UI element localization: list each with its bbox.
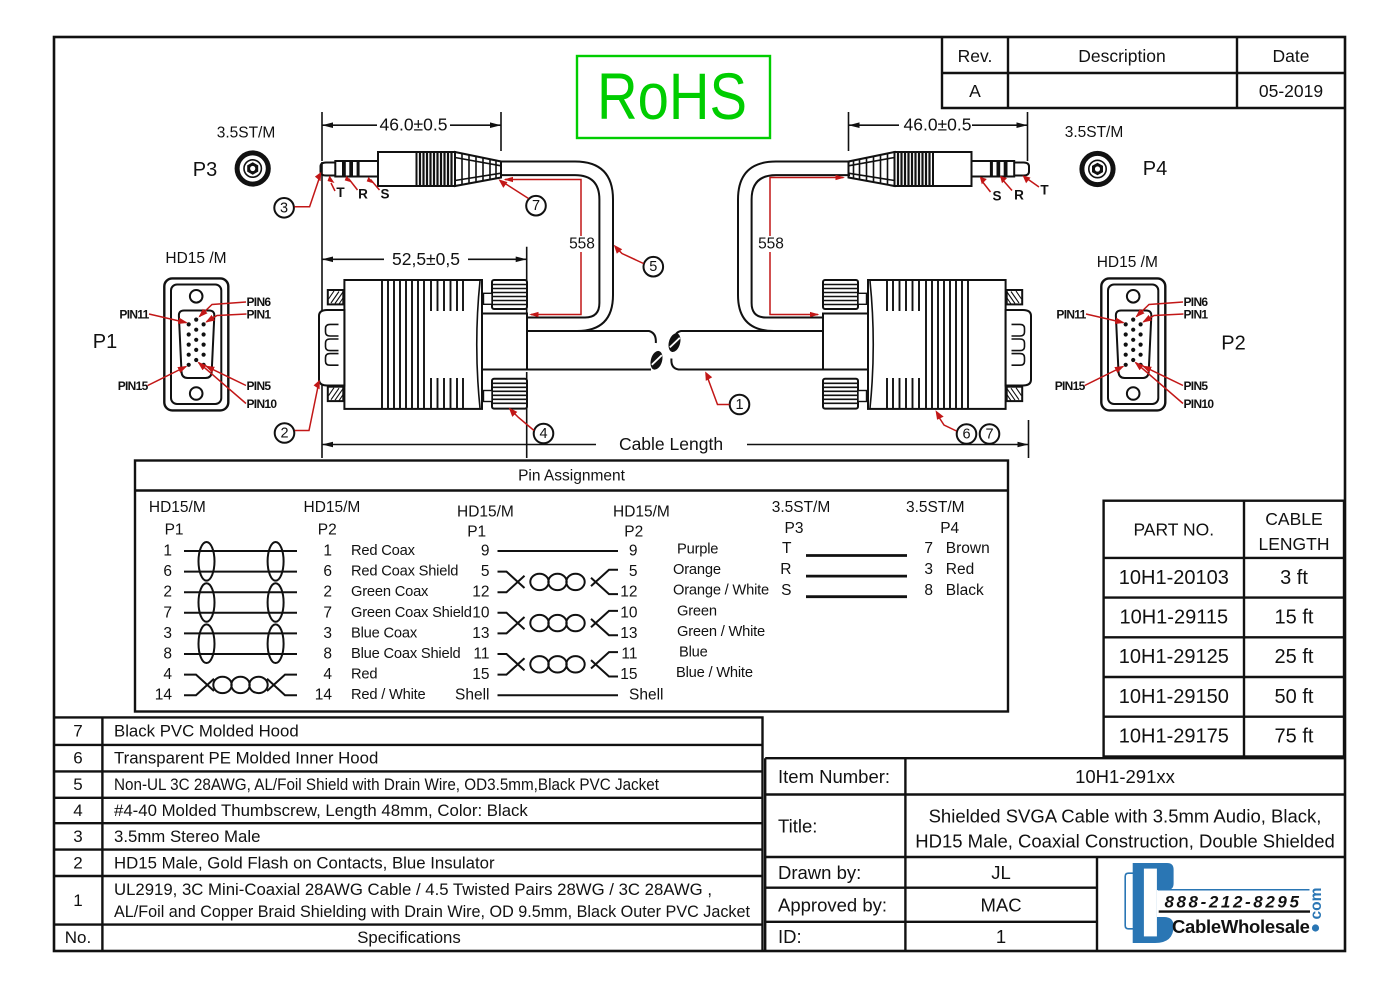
svg-text:1: 1: [996, 926, 1006, 947]
svg-text:#4-40 Molded Thumbscrew, Lengt: #4-40 Molded Thumbscrew, Length 48mm, Co…: [114, 801, 528, 820]
svg-text:11: 11: [621, 646, 637, 663]
svg-text:15: 15: [472, 666, 489, 683]
svg-text:A: A: [969, 81, 981, 101]
svg-text:4: 4: [73, 801, 82, 820]
svg-text:Red: Red: [351, 667, 377, 683]
svg-text:558: 558: [569, 236, 595, 253]
svg-text:P1: P1: [467, 524, 486, 541]
svg-text:Blue: Blue: [679, 645, 708, 661]
svg-text:3.5ST/M: 3.5ST/M: [906, 499, 965, 516]
svg-text:Blue / White: Blue / White: [676, 665, 753, 681]
svg-text:HD15 Male, Coaxial Constructio: HD15 Male, Coaxial Construction, Double …: [915, 831, 1335, 852]
svg-text:3 ft: 3 ft: [1280, 567, 1308, 589]
svg-text:3.5ST/M: 3.5ST/M: [772, 499, 831, 516]
svg-text:CableWholesale: CableWholesale: [1172, 916, 1310, 937]
svg-text:P3: P3: [785, 520, 804, 537]
svg-text:05-2019: 05-2019: [1259, 81, 1323, 101]
svg-text:52,5±0,5: 52,5±0,5: [392, 249, 460, 269]
svg-text:1: 1: [735, 397, 743, 413]
svg-text:15 ft: 15 ft: [1275, 607, 1314, 629]
svg-text:P3: P3: [193, 159, 217, 181]
svg-text:PIN15: PIN15: [118, 379, 149, 393]
svg-text:4: 4: [323, 666, 332, 683]
svg-text:Rev.: Rev.: [958, 46, 993, 66]
svg-text:Red Coax: Red Coax: [351, 543, 416, 559]
svg-text:Black: Black: [946, 582, 984, 599]
svg-text:25 ft: 25 ft: [1275, 646, 1314, 668]
svg-text:75 ft: 75 ft: [1275, 726, 1314, 748]
svg-text:6: 6: [962, 427, 970, 443]
svg-text:P4: P4: [1143, 158, 1167, 180]
svg-text:6: 6: [73, 749, 82, 768]
svg-text:6: 6: [323, 563, 332, 580]
svg-text:Black PVC Molded Hood: Black PVC Molded Hood: [114, 722, 299, 741]
svg-text:Green Coax Shield: Green Coax Shield: [351, 605, 472, 621]
svg-text:Non-UL 3C 28AWG, AL/Foil Shiel: Non-UL 3C 28AWG, AL/Foil Shield with Dra…: [114, 775, 659, 794]
svg-text:50 ft: 50 ft: [1275, 686, 1314, 708]
svg-text:Approved by:: Approved by:: [778, 894, 887, 915]
svg-text:10H1-291xx: 10H1-291xx: [1075, 766, 1176, 787]
svg-text:2: 2: [323, 584, 332, 601]
svg-text:Item Number:: Item Number:: [778, 766, 890, 787]
svg-text:5: 5: [649, 259, 657, 275]
svg-text:T: T: [782, 540, 792, 557]
svg-text:Red: Red: [946, 561, 974, 578]
svg-text:UL2919, 3C Mini-Coaxial 28AWG: UL2919, 3C Mini-Coaxial 28AWG Cable / 4.…: [114, 880, 712, 899]
svg-text:Cable Length: Cable Length: [619, 434, 723, 454]
svg-text:4: 4: [163, 666, 172, 683]
svg-text:15: 15: [620, 666, 637, 683]
svg-text:Shell: Shell: [455, 687, 489, 704]
svg-text:Green: Green: [677, 603, 717, 619]
svg-text:JL: JL: [991, 862, 1011, 883]
svg-text:HD15/M: HD15/M: [149, 499, 206, 516]
svg-text:1: 1: [323, 543, 332, 560]
svg-text:Shielded SVGA Cable with 3.5mm: Shielded SVGA Cable with 3.5mm Audio, Bl…: [929, 806, 1322, 827]
svg-text:558: 558: [758, 236, 784, 253]
svg-text:T: T: [336, 185, 345, 200]
svg-text:9: 9: [481, 543, 490, 560]
svg-text:R: R: [780, 561, 791, 578]
svg-text:3: 3: [163, 625, 172, 642]
svg-text:Green Coax: Green Coax: [351, 584, 429, 600]
svg-text:11: 11: [473, 646, 489, 663]
svg-text:Blue Coax: Blue Coax: [351, 625, 418, 641]
svg-text:PART NO.: PART NO.: [1133, 519, 1214, 539]
svg-text:8: 8: [924, 582, 933, 599]
svg-text:Specifications: Specifications: [357, 928, 461, 947]
svg-text:P2: P2: [624, 524, 643, 541]
svg-text:8: 8: [323, 646, 332, 663]
svg-text:Brown: Brown: [946, 540, 990, 557]
svg-text:13: 13: [472, 625, 489, 642]
svg-text:2: 2: [73, 853, 82, 872]
svg-text:10H1-29150: 10H1-29150: [1119, 686, 1229, 708]
svg-text:5: 5: [629, 563, 638, 580]
svg-text:46.0±0.5: 46.0±0.5: [904, 115, 972, 135]
svg-text:Shell: Shell: [629, 687, 663, 704]
svg-text:HD15 /M: HD15 /M: [1097, 254, 1158, 271]
svg-text:PIN11: PIN11: [1056, 307, 1086, 321]
svg-text:7: 7: [323, 604, 332, 621]
svg-text:PIN11: PIN11: [119, 307, 149, 321]
svg-text:10H1-20103: 10H1-20103: [1119, 567, 1229, 589]
svg-text:P4: P4: [940, 520, 959, 537]
svg-text:6: 6: [163, 563, 172, 580]
svg-text:S: S: [380, 187, 389, 202]
svg-text:3.5ST/M: 3.5ST/M: [1065, 124, 1124, 141]
svg-text:Transparent PE Molded Inner H: Transparent PE Molded Inner Hood: [114, 749, 378, 768]
svg-text:10: 10: [620, 604, 638, 621]
svg-text:13: 13: [620, 625, 637, 642]
svg-text:3: 3: [924, 561, 933, 578]
svg-text:PIN5: PIN5: [1184, 379, 1209, 393]
svg-text:P1: P1: [93, 331, 117, 353]
svg-text:PIN1: PIN1: [1184, 307, 1209, 321]
svg-text:HD15/M: HD15/M: [457, 503, 514, 520]
svg-text:2: 2: [163, 584, 172, 601]
svg-text:CABLE: CABLE: [1265, 509, 1322, 529]
svg-text:HD15/M: HD15/M: [613, 503, 670, 520]
svg-text:HD15/M: HD15/M: [304, 499, 361, 516]
svg-text:1: 1: [73, 891, 82, 910]
svg-text:Orange: Orange: [673, 562, 721, 578]
svg-text:Blue Coax Shield: Blue Coax Shield: [351, 646, 461, 662]
svg-text:ID:: ID:: [778, 926, 802, 947]
svg-text:HD15 /M: HD15 /M: [165, 250, 226, 267]
svg-text:10H1-29175: 10H1-29175: [1119, 726, 1229, 748]
svg-text:Green / White: Green / White: [677, 624, 765, 640]
svg-text:9: 9: [629, 543, 638, 560]
svg-text:Red Coax Shield: Red Coax Shield: [351, 564, 458, 580]
svg-text:R: R: [358, 187, 368, 202]
svg-text:1: 1: [163, 543, 172, 560]
svg-text:3: 3: [323, 625, 332, 642]
svg-text:PIN15: PIN15: [1055, 379, 1086, 393]
svg-text:com: com: [1308, 888, 1325, 920]
svg-text:Title:: Title:: [778, 816, 817, 837]
svg-text:HD15 Male, Gold Flash on Conta: HD15 Male, Gold Flash on Contacts, Blue …: [114, 853, 495, 872]
svg-text:Drawn by:: Drawn by:: [778, 862, 861, 883]
svg-text:2: 2: [280, 426, 288, 442]
svg-text:RoHS: RoHS: [597, 59, 747, 133]
svg-text:10: 10: [472, 604, 490, 621]
svg-text:PIN10: PIN10: [247, 397, 278, 411]
svg-text:46.0±0.5: 46.0±0.5: [380, 115, 448, 135]
svg-text:S: S: [781, 582, 791, 599]
svg-text:AL/Foil and Copper Braid Shiel: AL/Foil and Copper Braid Shielding with …: [114, 902, 750, 921]
svg-text:12: 12: [472, 584, 489, 601]
svg-text:3.5mm Stereo Male: 3.5mm Stereo Male: [114, 827, 260, 846]
svg-text:3: 3: [280, 200, 288, 216]
svg-text:4: 4: [539, 426, 547, 442]
svg-text:10H1-29115: 10H1-29115: [1119, 607, 1228, 629]
svg-text:10H1-29125: 10H1-29125: [1119, 646, 1229, 668]
svg-text:7: 7: [532, 198, 540, 214]
svg-text:Description: Description: [1078, 46, 1166, 66]
svg-text:14: 14: [315, 687, 333, 704]
svg-text:Purple: Purple: [677, 542, 718, 558]
svg-text:MAC: MAC: [980, 894, 1021, 915]
svg-text:Orange / White: Orange / White: [673, 583, 769, 599]
svg-text:7: 7: [73, 722, 82, 741]
svg-text:3.5ST/M: 3.5ST/M: [217, 125, 276, 142]
svg-text:PIN10: PIN10: [1184, 397, 1215, 411]
svg-text:5: 5: [73, 775, 82, 794]
svg-text:7: 7: [924, 540, 933, 557]
svg-text:P2: P2: [1221, 333, 1245, 355]
svg-text:8: 8: [163, 646, 172, 663]
svg-text:Date: Date: [1273, 46, 1310, 66]
svg-text:T: T: [1040, 183, 1049, 198]
svg-text:PIN5: PIN5: [247, 379, 272, 393]
svg-text:5: 5: [481, 563, 490, 580]
svg-text:P2: P2: [318, 521, 337, 538]
svg-text:PIN1: PIN1: [247, 307, 272, 321]
svg-text:7: 7: [985, 427, 993, 443]
svg-text:Pin Assignment: Pin Assignment: [518, 468, 626, 485]
svg-text:LENGTH: LENGTH: [1259, 534, 1330, 554]
svg-text:888-212-8295: 888-212-8295: [1164, 892, 1301, 911]
svg-text:S: S: [992, 189, 1001, 204]
svg-text:12: 12: [620, 584, 637, 601]
svg-text:Red / White: Red / White: [351, 687, 426, 703]
svg-text:14: 14: [155, 687, 173, 704]
svg-text:R: R: [1014, 188, 1024, 203]
svg-text:P1: P1: [165, 521, 184, 538]
svg-text:3: 3: [73, 827, 82, 846]
svg-text:7: 7: [163, 604, 172, 621]
svg-text:No.: No.: [65, 928, 91, 947]
